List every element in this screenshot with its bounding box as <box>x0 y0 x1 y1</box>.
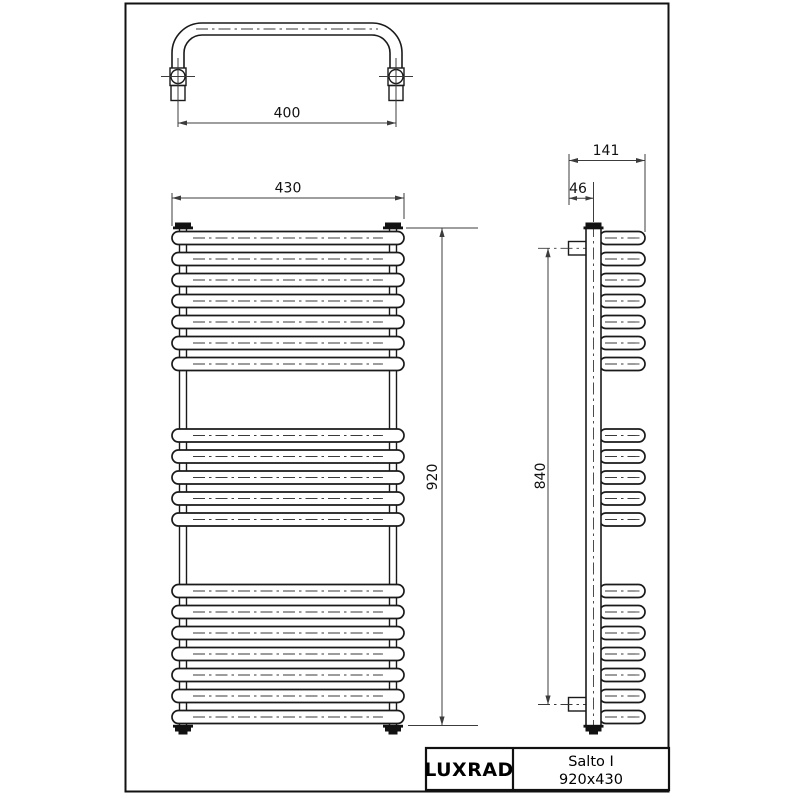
dim-width: 430 <box>172 181 404 227</box>
dim-axle-spacing-label: 400 <box>274 106 301 122</box>
model-text: Salto I <box>568 754 614 770</box>
top-view-tube-inner <box>184 35 390 68</box>
dim-depth-label: 141 <box>593 143 620 159</box>
dim-width-label: 430 <box>275 181 302 197</box>
technical-drawing: 400 <box>0 0 799 799</box>
dim-mounting-height-label: 840 <box>533 463 549 490</box>
dim-wall-offset-label: 46 <box>569 181 587 197</box>
brand-text: LUXRAD <box>424 759 514 781</box>
front-top-caps <box>173 223 403 230</box>
side-view: 141 46 840 <box>533 143 645 735</box>
top-view-tube-outer <box>172 23 402 68</box>
front-rungs <box>172 232 404 724</box>
drawing-sheet: 400 <box>0 0 799 799</box>
dim-height: 920 <box>406 228 478 726</box>
title-block: LUXRAD Salto I 920x430 <box>424 748 669 790</box>
size-text: 920x430 <box>559 772 623 788</box>
side-rungs <box>600 232 646 724</box>
dim-height-label: 920 <box>425 464 441 491</box>
front-view: 430 920 <box>172 181 478 735</box>
dim-axle-spacing: 400 <box>178 106 396 126</box>
dim-mounting-height: 840 <box>533 248 551 704</box>
front-bottom-caps <box>173 725 403 735</box>
top-view: 400 <box>161 23 413 127</box>
side-collector-tube <box>586 225 601 735</box>
dim-wall-offset: 46 <box>569 181 594 222</box>
